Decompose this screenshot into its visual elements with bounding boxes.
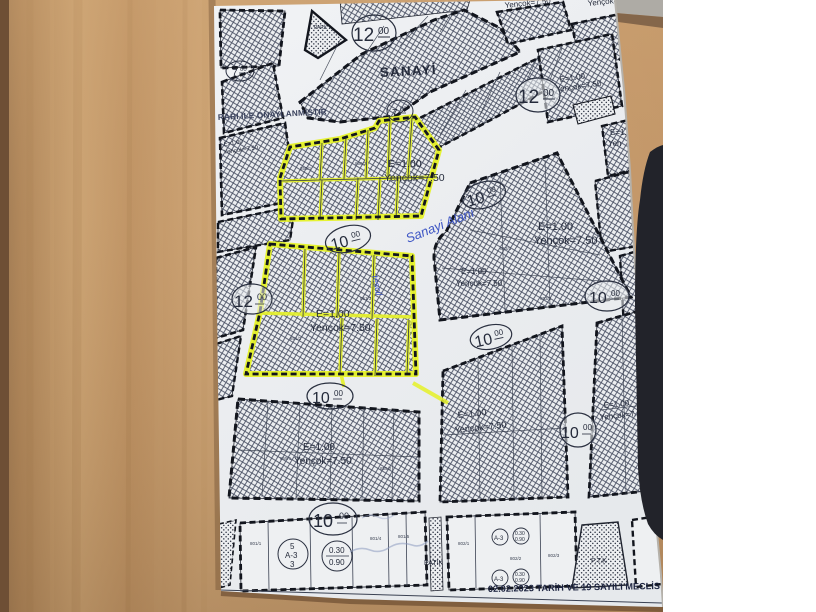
svg-text:12: 12 [353, 25, 374, 46]
svg-text:PATİK: PATİK [424, 558, 444, 567]
svg-text:E=1.00: E=1.00 [316, 308, 350, 320]
svg-text:00: 00 [378, 26, 390, 37]
svg-text:0.30: 0.30 [329, 546, 345, 555]
svg-text:3: 3 [290, 560, 295, 569]
svg-text:00: 00 [240, 67, 247, 73]
svg-text:855/1: 855/1 [280, 456, 292, 461]
svg-text:850/1: 850/1 [300, 166, 312, 171]
svg-text:E=1.00: E=1.00 [461, 267, 487, 276]
svg-text:10: 10 [589, 290, 607, 307]
svg-text:Yençok=7.50: Yençok=7.50 [456, 279, 503, 288]
svg-text:00: 00 [611, 289, 620, 298]
svg-text:00: 00 [257, 292, 267, 302]
svg-text:12: 12 [518, 87, 539, 108]
svg-text:E=1.00: E=1.00 [538, 221, 573, 233]
svg-text:P.T.K: P.T.K [591, 558, 607, 565]
svg-text:850/2: 850/2 [355, 161, 367, 166]
svg-text:E=1.00: E=1.00 [388, 158, 422, 170]
svg-text:10: 10 [561, 425, 579, 442]
svg-text:Yençok=7.50: Yençok=7.50 [384, 172, 445, 184]
svg-text:802/1: 802/1 [458, 541, 470, 546]
svg-text:Yençok=7.50: Yençok=7.50 [294, 456, 352, 467]
svg-text:10: 10 [473, 331, 494, 351]
svg-text:851/3: 851/3 [360, 296, 372, 301]
svg-text:00: 00 [334, 389, 343, 398]
svg-text:E=1.00: E=1.00 [303, 442, 335, 453]
svg-text:801/4: 801/4 [370, 536, 382, 541]
svg-text:00: 00 [583, 423, 592, 432]
svg-text:A-3: A-3 [285, 551, 298, 560]
svg-text:5: 5 [290, 542, 295, 551]
svg-text:PARK: PARK [314, 25, 328, 31]
svg-text:7: 7 [232, 68, 238, 79]
svg-text:7: 7 [392, 108, 398, 119]
svg-text:0.90: 0.90 [329, 558, 345, 567]
svg-text:802/2: 802/2 [510, 556, 522, 561]
svg-text:A-3: A-3 [494, 577, 504, 583]
svg-text:A-3: A-3 [494, 536, 504, 542]
svg-text:12: 12 [234, 292, 253, 311]
svg-text:00: 00 [400, 107, 407, 113]
svg-text:Yençok=7.50: Yençok=7.50 [310, 322, 371, 334]
svg-text:802/3: 802/3 [548, 553, 560, 558]
svg-text:801/5: 801/5 [398, 534, 410, 539]
svg-text:855/2: 855/2 [380, 466, 392, 471]
svg-text:853/2: 853/2 [540, 296, 552, 301]
svg-text:00: 00 [543, 88, 555, 99]
svg-text:10: 10 [313, 511, 333, 531]
svg-text:853/1: 853/1 [500, 246, 512, 251]
svg-text:SANAYİ: SANAYİ [379, 62, 437, 80]
svg-text:E=1.: E=1. [610, 128, 627, 137]
svg-text:801/1: 801/1 [250, 541, 262, 546]
svg-text:851/2: 851/2 [290, 336, 302, 341]
svg-text:0.90: 0.90 [515, 537, 525, 543]
svg-text:Yençok=7.50: Yençok=7.50 [534, 235, 598, 247]
svg-text:00: 00 [339, 511, 349, 521]
svg-text:Yen: Yen [608, 139, 622, 148]
svg-text:10: 10 [312, 390, 330, 407]
